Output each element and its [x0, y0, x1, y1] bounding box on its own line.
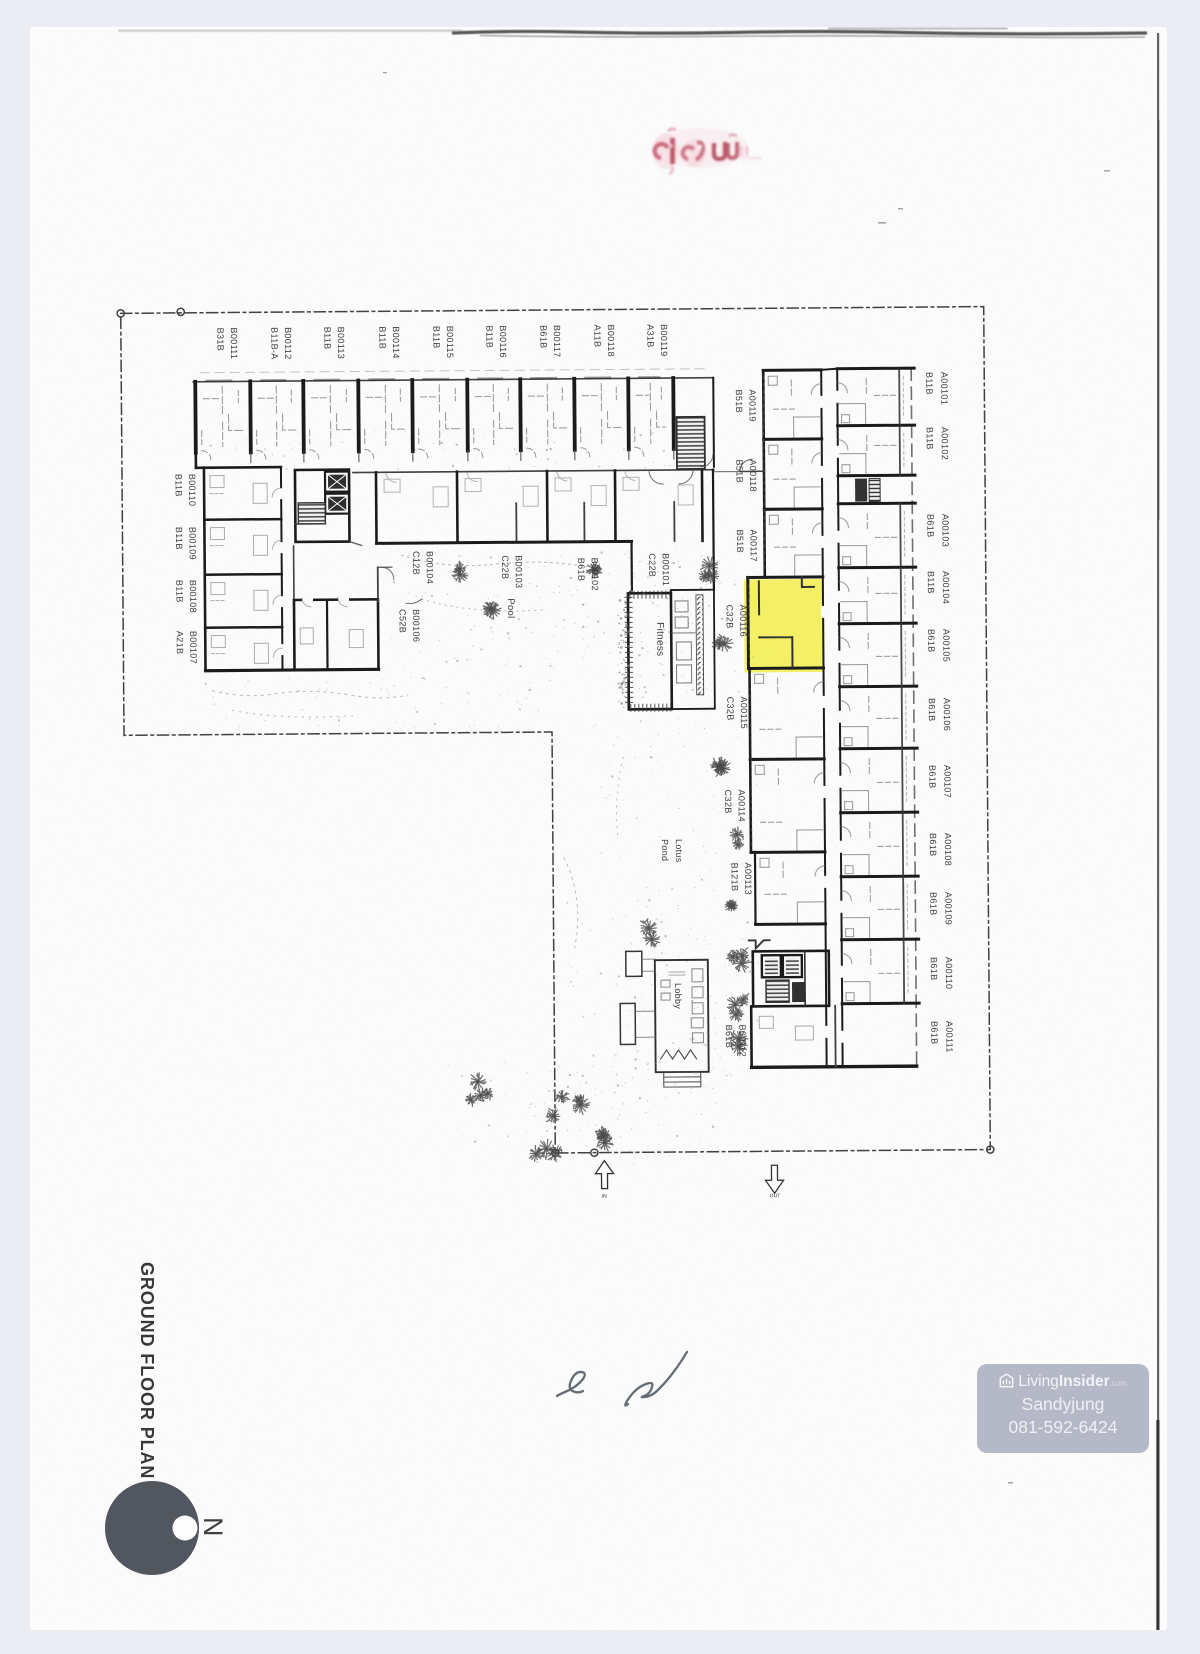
svg-text:GROUND FLOOR PLAN: GROUND FLOOR PLAN: [137, 1262, 157, 1479]
svg-text:N: N: [198, 1517, 228, 1537]
